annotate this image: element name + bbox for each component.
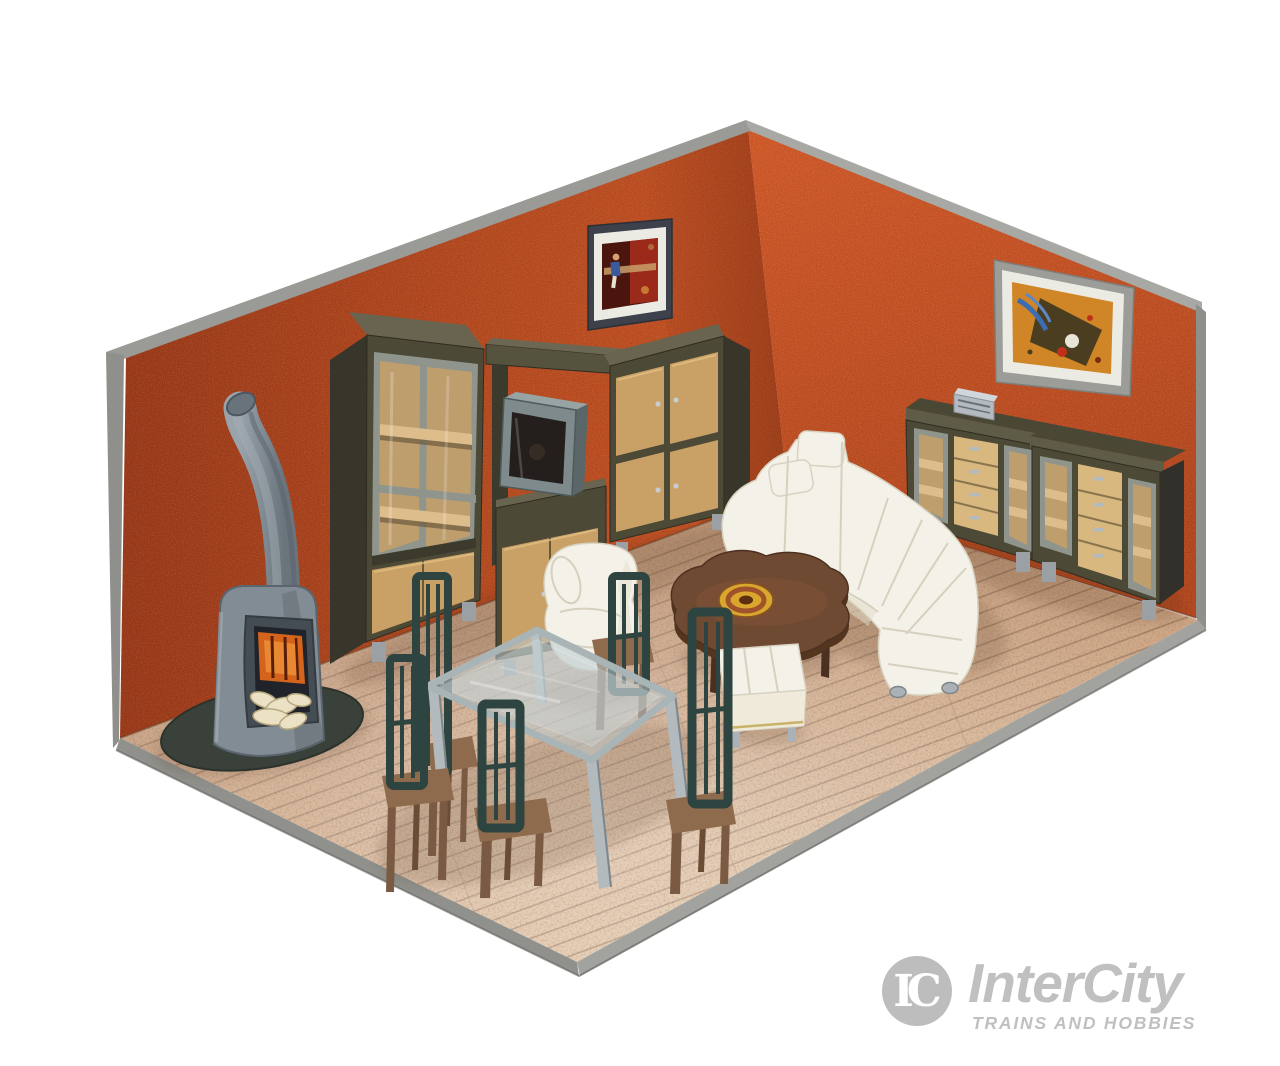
drawer-handle <box>970 516 979 520</box>
sofa-foot <box>890 687 906 698</box>
drawer-handle <box>970 470 979 474</box>
sideboard-glass-panel <box>1004 445 1032 552</box>
drawer-handle <box>1094 554 1103 558</box>
television <box>500 392 588 496</box>
picture-art <box>602 238 658 310</box>
drawer-handle <box>970 493 979 497</box>
ottoman-leg <box>732 730 740 748</box>
wall-side-edge-right <box>1196 304 1206 630</box>
chair-leg <box>670 828 682 894</box>
sideboard-glass-panel <box>1040 456 1072 556</box>
drawer-handle <box>1094 477 1103 481</box>
logo-monogram: IC <box>893 966 935 1017</box>
door-knob <box>673 397 678 402</box>
logo-text: InterCity TRAINS AND HOBBIES <box>968 956 1196 1033</box>
cabinet-foot <box>372 642 386 662</box>
scene-svg <box>0 0 1280 1066</box>
cabinet-side <box>330 335 367 664</box>
sideboard-glass-panel <box>1128 478 1156 598</box>
cabinet-foot <box>462 602 476 621</box>
drawer-handle <box>1094 528 1103 532</box>
sideboard-foot <box>1142 600 1156 620</box>
sideboard-drawers <box>1078 464 1122 580</box>
sideboard-side <box>1160 460 1184 604</box>
logo-brand: InterCity <box>968 956 1196 1011</box>
sofa-headrest <box>768 459 815 498</box>
door-knob <box>655 401 660 406</box>
chair-leg <box>480 836 492 898</box>
cabinet-door <box>670 440 718 520</box>
sideboard-drawers <box>954 436 998 536</box>
sideboard-foot <box>1016 552 1030 572</box>
intercity-logo-badge: IC <box>882 956 952 1026</box>
sideboard-foot <box>1042 562 1056 582</box>
product-photo: IC InterCity TRAINS AND HOBBIES <box>0 0 1280 1066</box>
back-wall-picture <box>588 219 672 330</box>
sofa-foot <box>942 683 958 694</box>
drawer-handle <box>1094 503 1103 507</box>
intercity-watermark: IC InterCity TRAINS AND HOBBIES <box>882 956 1196 1033</box>
door-knob <box>673 483 678 488</box>
door-knob <box>655 487 660 492</box>
drawer-handle <box>970 447 979 451</box>
logo-tagline: TRAINS AND HOBBIES <box>972 1015 1196 1033</box>
stove-fire <box>258 632 305 684</box>
